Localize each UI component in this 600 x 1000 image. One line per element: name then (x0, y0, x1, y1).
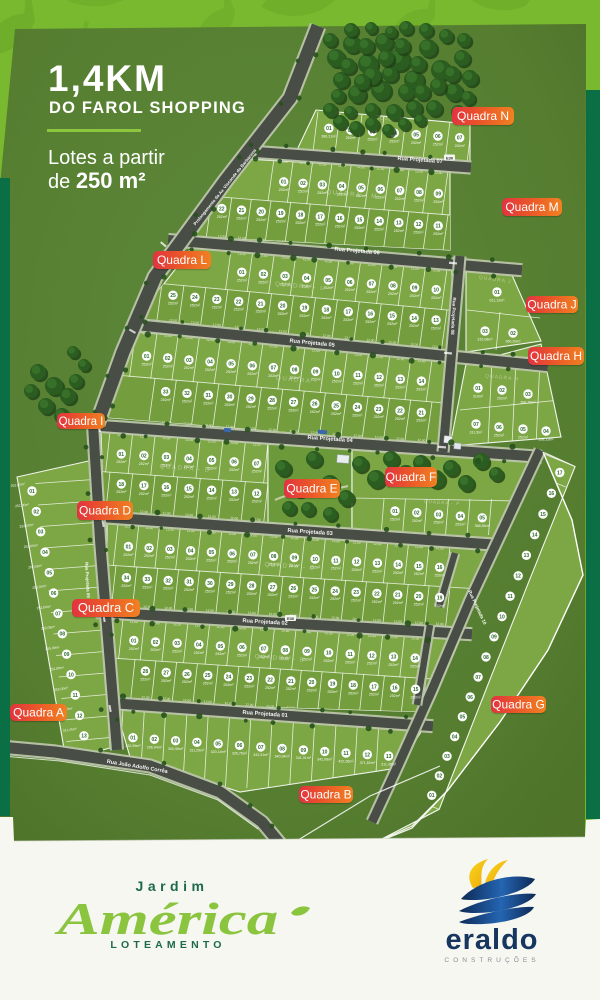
svg-text:04: 04 (42, 550, 48, 556)
svg-text:25: 25 (312, 588, 318, 594)
svg-text:01: 01 (429, 793, 435, 799)
svg-text:04: 04 (304, 276, 310, 282)
svg-text:02: 02 (141, 453, 147, 459)
svg-text:32: 32 (165, 578, 171, 584)
svg-text:252m²: 252m² (367, 662, 378, 666)
svg-text:18: 18 (324, 308, 330, 314)
svg-text:01: 01 (119, 452, 125, 458)
svg-text:252m²: 252m² (227, 560, 238, 564)
svg-text:04: 04 (194, 740, 200, 746)
svg-text:342,08m²: 342,08m² (317, 758, 333, 762)
svg-text:03: 03 (444, 754, 450, 760)
svg-text:252m²: 252m² (307, 689, 318, 693)
svg-text:252m²: 252m² (267, 407, 278, 411)
svg-text:252m²: 252m² (390, 694, 401, 698)
svg-text:07: 07 (397, 189, 403, 195)
svg-text:11: 11 (355, 373, 361, 379)
svg-text:10: 10 (312, 557, 318, 563)
svg-text:32: 32 (184, 391, 190, 397)
svg-text:08: 08 (279, 746, 285, 752)
svg-text:252m²: 252m² (353, 382, 364, 386)
svg-text:252m²: 252m² (372, 600, 383, 604)
svg-text:09: 09 (313, 369, 319, 375)
svg-text:252m²: 252m² (144, 554, 155, 558)
svg-text:21: 21 (239, 208, 245, 214)
svg-text:33: 33 (163, 390, 169, 396)
svg-text:Quadra C: Quadra C (78, 600, 134, 615)
svg-text:10: 10 (322, 749, 328, 755)
svg-text:06: 06 (435, 134, 441, 140)
svg-text:29: 29 (248, 396, 254, 402)
svg-text:07: 07 (55, 611, 61, 617)
svg-text:252m²: 252m² (165, 556, 176, 560)
svg-text:15: 15 (357, 217, 363, 223)
svg-text:15: 15 (389, 314, 395, 320)
svg-text:311,5m²: 311,5m² (470, 430, 484, 434)
svg-text:24: 24 (192, 295, 198, 301)
svg-text:03: 03 (482, 329, 488, 335)
svg-text:E30: E30 (287, 616, 295, 621)
svg-text:252m²: 252m² (182, 680, 193, 684)
svg-text:23: 23 (376, 407, 382, 413)
svg-text:25: 25 (205, 673, 211, 679)
svg-text:09: 09 (292, 556, 298, 562)
svg-text:Quadra D: Quadra D (79, 504, 131, 518)
svg-text:05: 05 (358, 186, 364, 192)
svg-text:27: 27 (291, 400, 297, 406)
svg-text:252m²: 252m² (140, 677, 151, 681)
svg-text:21: 21 (395, 593, 401, 599)
svg-text:Quadra M: Quadra M (505, 200, 558, 214)
svg-text:252m²: 252m² (494, 433, 505, 437)
svg-text:11: 11 (348, 652, 354, 658)
svg-text:03: 03 (525, 392, 531, 398)
svg-text:252m²: 252m² (236, 216, 247, 220)
svg-text:252m²: 252m² (205, 368, 216, 372)
svg-text:23: 23 (247, 676, 253, 682)
svg-text:11: 11 (333, 558, 339, 564)
svg-text:09: 09 (491, 635, 497, 641)
svg-text:252m²: 252m² (268, 593, 279, 597)
svg-text:20: 20 (309, 680, 315, 686)
svg-text:11: 11 (507, 594, 513, 600)
svg-text:27: 27 (163, 670, 169, 676)
svg-text:252m²: 252m² (431, 296, 442, 300)
svg-text:320,14m²: 320,14m² (211, 750, 227, 754)
svg-text:19: 19 (302, 306, 308, 312)
svg-text:252m²: 252m² (247, 592, 258, 596)
svg-text:06: 06 (250, 364, 256, 370)
svg-text:15: 15 (413, 687, 419, 693)
svg-text:14: 14 (395, 562, 401, 568)
svg-text:358,13m²: 358,13m² (538, 437, 554, 441)
svg-text:360,20m²: 360,20m² (505, 339, 521, 343)
svg-text:11: 11 (436, 224, 442, 230)
svg-text:252m²: 252m² (116, 460, 127, 464)
svg-text:eraldo: eraldo (445, 924, 538, 956)
svg-text:252m²: 252m² (302, 658, 313, 662)
svg-text:252m²: 252m² (226, 370, 237, 374)
svg-text:02: 02 (261, 272, 267, 278)
svg-text:252m²: 252m² (279, 188, 290, 192)
svg-text:25: 25 (170, 293, 176, 299)
svg-text:252m²: 252m² (298, 190, 309, 194)
svg-text:29: 29 (228, 582, 234, 588)
svg-text:252m²: 252m² (433, 232, 444, 236)
svg-text:20: 20 (258, 210, 264, 216)
svg-text:10: 10 (433, 288, 439, 294)
svg-text:252m²: 252m² (302, 284, 313, 288)
svg-text:252m²: 252m² (414, 198, 425, 202)
svg-text:252m²: 252m² (393, 571, 404, 575)
svg-text:03: 03 (174, 641, 180, 647)
svg-text:252m²: 252m² (246, 405, 257, 409)
svg-text:252m²: 252m² (337, 193, 348, 197)
svg-text:02: 02 (146, 546, 152, 552)
svg-text:Quadra A: Quadra A (13, 706, 64, 720)
svg-text:03: 03 (320, 183, 326, 189)
svg-text:04: 04 (339, 184, 345, 190)
svg-text:05: 05 (520, 427, 526, 433)
svg-text:252m²: 252m² (321, 316, 332, 320)
svg-text:311,45m²: 311,45m² (381, 762, 397, 766)
svg-text:01: 01 (392, 509, 398, 515)
svg-text:E30: E30 (446, 155, 454, 160)
svg-text:09: 09 (64, 652, 70, 658)
svg-text:18: 18 (119, 482, 125, 488)
svg-text:252m²: 252m² (351, 599, 362, 603)
svg-text:10: 10 (499, 614, 505, 620)
svg-text:252m²: 252m² (354, 226, 365, 230)
svg-text:252m²: 252m² (223, 683, 234, 687)
svg-text:252m²: 252m² (229, 498, 240, 502)
svg-text:06: 06 (239, 645, 245, 651)
svg-text:332,99m²: 332,99m² (125, 744, 141, 748)
svg-text:22: 22 (397, 409, 403, 415)
svg-text:252m²: 252m² (431, 326, 442, 330)
svg-text:13: 13 (81, 734, 87, 740)
svg-text:341,01m²: 341,01m² (296, 756, 312, 760)
svg-text:05: 05 (413, 133, 419, 139)
svg-text:20: 20 (416, 594, 422, 600)
svg-text:16: 16 (368, 312, 374, 318)
svg-text:326,76m²: 326,76m² (232, 752, 248, 756)
svg-text:252m²: 252m² (184, 588, 195, 592)
svg-text:02: 02 (510, 331, 516, 337)
svg-text:252m²: 252m² (390, 517, 401, 521)
svg-text:252m²: 252m² (252, 470, 263, 474)
svg-text:28: 28 (269, 398, 275, 404)
svg-text:252m²: 252m² (237, 279, 248, 283)
svg-text:24: 24 (332, 589, 338, 595)
svg-text:23: 23 (214, 297, 220, 303)
svg-text:06: 06 (467, 695, 473, 701)
svg-text:Quadra E: Quadra E (286, 482, 337, 496)
svg-text:24: 24 (355, 405, 361, 411)
svg-text:12: 12 (376, 375, 382, 381)
svg-text:12: 12 (416, 222, 422, 228)
svg-text:19: 19 (330, 682, 336, 688)
svg-text:252m²: 252m² (259, 655, 270, 659)
svg-text:04: 04 (196, 643, 202, 649)
svg-text:611,12m²: 611,12m² (490, 298, 506, 302)
svg-text:18: 18 (298, 213, 304, 219)
svg-text:371,62m²: 371,62m² (360, 761, 376, 765)
svg-text:368,56m²: 368,56m² (475, 524, 491, 528)
svg-text:Quadra G: Quadra G (492, 698, 545, 712)
svg-text:13: 13 (396, 221, 402, 227)
svg-text:252m²: 252m² (311, 378, 322, 382)
svg-text:13: 13 (231, 490, 237, 496)
svg-text:21: 21 (258, 301, 264, 307)
svg-text:10: 10 (326, 651, 332, 657)
svg-text:252m²: 252m² (343, 318, 354, 322)
svg-text:12: 12 (254, 491, 260, 497)
svg-text:252m²: 252m² (410, 294, 421, 298)
svg-text:05: 05 (209, 550, 215, 556)
svg-text:14: 14 (412, 656, 418, 662)
svg-text:252m²: 252m² (123, 553, 134, 557)
svg-text:252m²: 252m² (395, 197, 406, 201)
svg-text:06: 06 (231, 460, 237, 466)
svg-text:252m²: 252m² (416, 387, 427, 391)
svg-text:252m²: 252m² (435, 604, 446, 608)
svg-text:03: 03 (173, 739, 179, 745)
svg-text:Quadra H: Quadra H (530, 349, 582, 363)
svg-text:13: 13 (524, 553, 530, 559)
svg-text:14: 14 (376, 219, 382, 225)
svg-text:01: 01 (239, 270, 245, 276)
svg-text:CONSTRUÇÕES: CONSTRUÇÕES (444, 955, 539, 964)
svg-text:26: 26 (291, 586, 297, 592)
svg-text:05: 05 (209, 458, 215, 464)
svg-text:252m²: 252m² (388, 292, 399, 296)
svg-text:252m²: 252m² (455, 144, 466, 148)
svg-text:Quadra B: Quadra B (300, 788, 351, 802)
svg-text:252m²: 252m² (161, 398, 172, 402)
svg-text:252m²: 252m² (121, 584, 132, 588)
svg-text:01: 01 (326, 126, 332, 132)
svg-text:13: 13 (386, 754, 392, 760)
svg-text:16: 16 (437, 565, 443, 571)
svg-text:252m²: 252m² (434, 521, 445, 525)
svg-text:Lotes a partir: Lotes a partir (48, 147, 165, 169)
svg-text:30: 30 (227, 395, 233, 401)
svg-text:30: 30 (207, 581, 213, 587)
svg-text:10: 10 (68, 673, 74, 679)
svg-text:02: 02 (153, 640, 159, 646)
svg-text:01: 01 (130, 736, 136, 742)
svg-text:252m²: 252m² (280, 282, 291, 286)
svg-text:01: 01 (29, 489, 35, 495)
svg-text:252m²: 252m² (497, 396, 508, 400)
svg-text:06: 06 (51, 591, 57, 597)
svg-text:05: 05 (228, 362, 234, 368)
svg-text:252m²: 252m² (289, 564, 300, 568)
svg-text:252m²: 252m² (248, 561, 259, 565)
svg-text:252m²: 252m² (395, 385, 406, 389)
svg-text:12: 12 (354, 560, 360, 566)
svg-text:07: 07 (250, 553, 256, 559)
svg-text:252m²: 252m² (252, 500, 263, 504)
svg-text:05: 05 (479, 516, 485, 522)
svg-text:17: 17 (141, 483, 147, 489)
svg-text:252m²: 252m² (387, 322, 398, 326)
svg-text:252m²: 252m² (182, 400, 193, 404)
svg-text:252m²: 252m² (184, 495, 195, 499)
svg-text:17: 17 (557, 470, 563, 476)
svg-text:22: 22 (374, 591, 380, 597)
svg-text:252m²: 252m² (335, 224, 346, 228)
svg-text:252m²: 252m² (365, 320, 376, 324)
svg-text:252m²: 252m² (345, 288, 356, 292)
svg-text:252m²: 252m² (150, 648, 161, 652)
svg-text:06: 06 (347, 280, 353, 286)
svg-text:09: 09 (301, 748, 307, 754)
svg-text:06: 06 (229, 551, 235, 557)
svg-text:252m²: 252m² (225, 403, 236, 407)
svg-text:33: 33 (145, 577, 151, 583)
svg-text:07: 07 (271, 366, 277, 372)
svg-text:21: 21 (419, 410, 425, 416)
svg-text:02: 02 (437, 774, 443, 780)
svg-text:252m²: 252m² (310, 565, 321, 569)
svg-text:17: 17 (346, 310, 352, 316)
svg-text:20: 20 (280, 303, 286, 309)
svg-text:14: 14 (209, 488, 215, 494)
svg-text:252m²: 252m² (295, 221, 306, 225)
svg-text:252m²: 252m² (186, 557, 197, 561)
svg-text:252m²: 252m² (315, 223, 326, 227)
svg-text:08: 08 (390, 284, 396, 290)
svg-text:03: 03 (38, 530, 44, 536)
svg-text:252m²: 252m² (163, 587, 174, 591)
svg-text:05: 05 (460, 715, 466, 721)
svg-text:252m²: 252m² (393, 601, 404, 605)
svg-text:09: 09 (436, 191, 442, 197)
svg-text:252m²: 252m² (205, 589, 216, 593)
svg-text:252m²: 252m² (142, 585, 153, 589)
svg-text:28: 28 (249, 584, 255, 590)
svg-text:252m²: 252m² (317, 191, 328, 195)
svg-text:Quadra J: Quadra J (527, 298, 576, 312)
svg-text:02: 02 (152, 737, 158, 743)
svg-text:252m²: 252m² (226, 591, 237, 595)
svg-text:252m²: 252m² (161, 463, 172, 467)
svg-text:06: 06 (378, 187, 384, 193)
svg-text:252m²: 252m² (327, 690, 338, 694)
svg-text:13: 13 (391, 655, 397, 661)
svg-text:14: 14 (419, 379, 425, 385)
svg-text:07: 07 (457, 136, 463, 142)
svg-text:08: 08 (283, 648, 289, 654)
svg-text:252m²: 252m² (116, 490, 127, 494)
svg-text:13: 13 (433, 318, 439, 324)
svg-text:252m²: 252m² (356, 194, 367, 198)
svg-text:21: 21 (288, 679, 294, 685)
svg-text:14: 14 (411, 316, 417, 322)
svg-text:252m²: 252m² (375, 195, 386, 199)
svg-text:252m²: 252m² (268, 374, 279, 378)
svg-text:América: América (54, 893, 278, 944)
svg-text:252m²: 252m² (416, 419, 427, 423)
svg-text:252m²: 252m² (212, 306, 223, 310)
svg-text:DO FAROL SHOPPING: DO FAROL SHOPPING (49, 99, 246, 117)
svg-text:252m²: 252m² (190, 304, 201, 308)
svg-text:252m²: 252m² (207, 497, 218, 501)
svg-text:340,94m²: 340,94m² (275, 755, 291, 759)
svg-text:252m²: 252m² (455, 522, 466, 526)
svg-text:27: 27 (270, 585, 276, 591)
svg-text:252m²: 252m² (435, 574, 446, 578)
svg-text:08: 08 (292, 367, 298, 373)
svg-text:08: 08 (60, 632, 66, 638)
svg-text:05: 05 (325, 278, 331, 284)
svg-text:16: 16 (549, 491, 555, 497)
svg-text:05: 05 (215, 742, 221, 748)
svg-text:252m²: 252m² (265, 686, 276, 690)
svg-text:252m²: 252m² (414, 603, 425, 607)
svg-text:252m²: 252m² (348, 691, 359, 695)
svg-text:04: 04 (207, 360, 213, 366)
svg-text:04: 04 (543, 429, 549, 435)
svg-text:252m²: 252m² (413, 231, 424, 235)
svg-text:252m²: 252m² (276, 220, 287, 224)
svg-text:252m²: 252m² (299, 314, 310, 318)
svg-text:09: 09 (304, 649, 310, 655)
svg-text:19: 19 (278, 211, 284, 217)
svg-text:252m²: 252m² (256, 310, 267, 314)
svg-text:252m²: 252m² (518, 435, 529, 439)
svg-text:Quadra N: Quadra N (457, 109, 509, 123)
svg-text:22: 22 (219, 206, 225, 212)
svg-text:de 250 m²: de 250 m² (48, 168, 146, 193)
svg-text:1,4KM: 1,4KM (48, 58, 167, 99)
svg-text:16: 16 (164, 485, 170, 491)
svg-text:396,78m²: 396,78m² (520, 400, 536, 404)
svg-text:252m²: 252m² (310, 410, 321, 414)
svg-text:342,51m²: 342,51m² (253, 753, 269, 757)
svg-text:252m²: 252m² (352, 568, 363, 572)
svg-text:252m²: 252m² (409, 324, 420, 328)
svg-text:252m²: 252m² (139, 462, 150, 466)
svg-text:252m²: 252m² (388, 663, 399, 667)
svg-text:252m²: 252m² (288, 595, 299, 599)
svg-text:28: 28 (143, 669, 149, 675)
svg-text:11: 11 (73, 693, 79, 699)
svg-text:252m²: 252m² (280, 656, 291, 660)
svg-text:252m²: 252m² (172, 650, 183, 654)
svg-text:03: 03 (164, 455, 170, 461)
svg-text:31: 31 (206, 393, 212, 399)
svg-text:252m²: 252m² (374, 415, 385, 419)
svg-text:04: 04 (458, 514, 464, 520)
svg-text:03: 03 (436, 512, 442, 518)
svg-text:08: 08 (483, 655, 489, 661)
svg-text:03: 03 (186, 358, 192, 364)
svg-text:04: 04 (186, 457, 192, 463)
svg-text:252m²: 252m² (203, 682, 214, 686)
svg-text:17: 17 (371, 684, 377, 690)
svg-text:252m²: 252m² (269, 563, 280, 567)
svg-text:07: 07 (473, 422, 479, 428)
svg-text:01: 01 (475, 386, 481, 392)
svg-text:296,94m²: 296,94m² (147, 746, 163, 750)
svg-text:34: 34 (124, 576, 130, 582)
svg-text:252m²: 252m² (288, 408, 299, 412)
svg-text:03: 03 (167, 547, 173, 553)
svg-text:300,96m²: 300,96m² (168, 747, 184, 751)
